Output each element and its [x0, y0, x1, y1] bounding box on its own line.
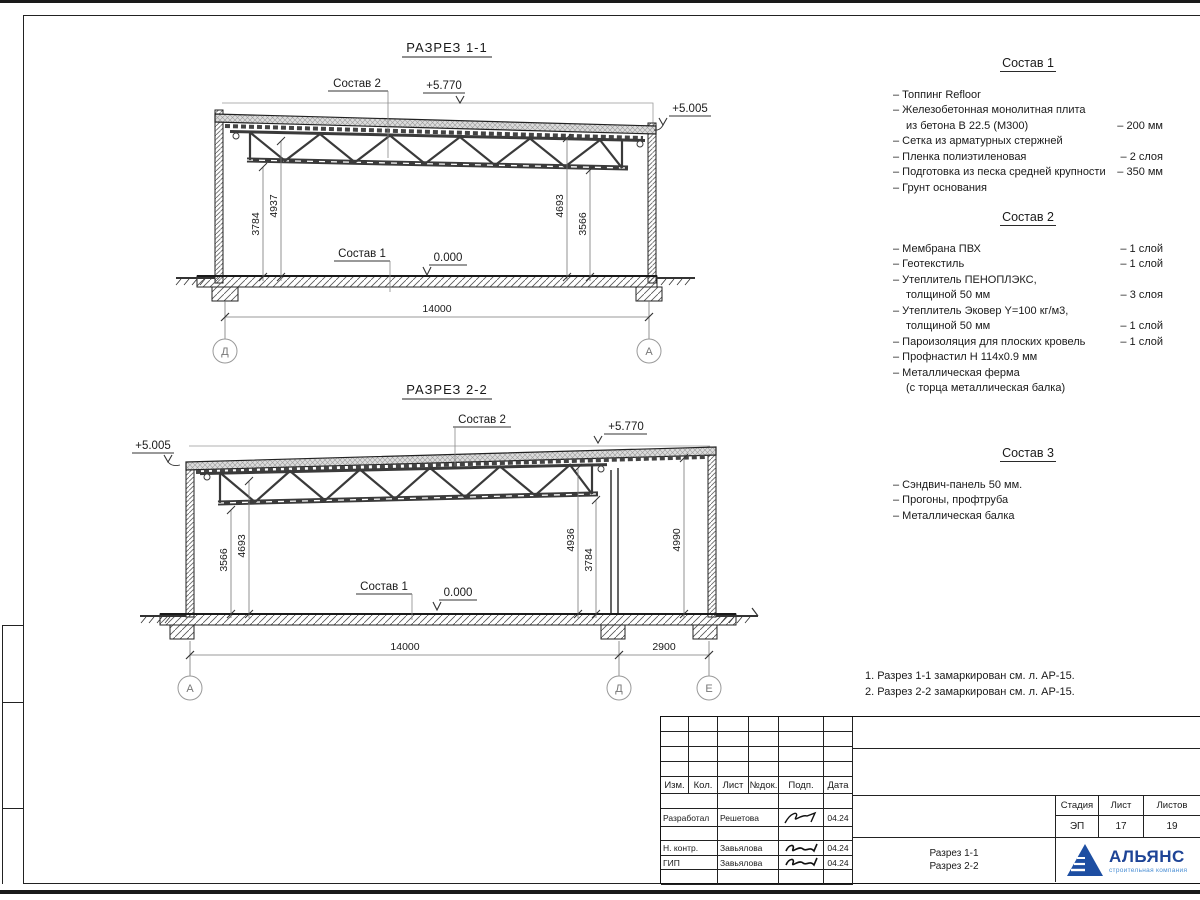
list-item: – Утеплитель ПЕНОПЛЭКС,толщиной 50 мм – … — [893, 273, 1163, 304]
col-header: Подп. — [779, 777, 824, 794]
svg-text:Состав 1: Состав 1 — [360, 581, 408, 593]
list-item: – Пленка полиэтиленовая – 2 слоя — [893, 150, 1163, 166]
dim-label: 4937 — [268, 194, 280, 218]
list-item: – Утеплитель Эковер Y=100 кг/м3,толщиной… — [893, 304, 1163, 335]
list-title: Состав 2 — [893, 210, 1163, 226]
role-cell: ГИП — [661, 856, 718, 870]
note-line: 2. Разрез 2-2 замаркирован см. л. АР-15. — [865, 684, 1075, 700]
item-text-line2: толщиной 50 мм — [893, 288, 1115, 304]
col-header: Кол. — [689, 777, 718, 794]
grid-axes: А Д Е — [178, 676, 721, 700]
item-value: – 1 слой — [1114, 257, 1163, 273]
col-header: №док. — [749, 777, 779, 794]
item-text: – Мембрана ПВХ — [893, 243, 981, 255]
wall-left — [215, 110, 223, 283]
note-line: 1. Разрез 1-1 замаркирован см. л. АР-15. — [865, 668, 1075, 684]
sheets-value: 19 — [1144, 816, 1200, 838]
stage-sheet-grid: Стадия Лист Листов ЭП 17 19 — [1056, 796, 1200, 838]
item-text: – Пленка полиэтиленовая — [893, 151, 1026, 163]
col-header: Дата — [824, 777, 853, 794]
svg-text:2900: 2900 — [652, 641, 676, 653]
list-item: – Сэндвич-панель 50 мм. — [893, 478, 1163, 494]
date-cell: 04.24 — [824, 809, 853, 827]
item-text-line2: (с торца металлическая балка) — [893, 381, 1163, 397]
section-2-2: РАЗРЕЗ 2-2 — [132, 382, 758, 700]
svg-text:+5.005: +5.005 — [135, 440, 171, 452]
span-dimension: 14000 2900 — [186, 641, 713, 676]
svg-text:+5.770: +5.770 — [426, 80, 462, 92]
item-text: – Грунт основания — [893, 182, 987, 194]
svg-text:14000: 14000 — [390, 641, 419, 653]
dim-label: 3566 — [218, 548, 230, 572]
elevation-mark-eave: +5.005 — [132, 440, 180, 466]
sheet-title: Разрез 1-1 Разрез 2-2 — [853, 838, 1056, 882]
composition-list-2: Состав 2 – Мембрана ПВХ – 1 слой – Геоте… — [893, 210, 1163, 397]
item-value: – 1 слой — [1114, 319, 1163, 335]
signature-cell — [779, 841, 824, 856]
dim-label: 4990 — [671, 528, 683, 552]
logo-name: АЛЬЯНС — [1109, 847, 1187, 867]
list-item: – Топпинг Refloor — [893, 88, 1163, 104]
sheets-label: Листов — [1144, 796, 1200, 816]
dim-label: 4693 — [554, 194, 566, 218]
empty-cell — [853, 796, 1056, 838]
item-value: – 1 слой — [1114, 242, 1163, 258]
svg-text:+5.770: +5.770 — [608, 421, 644, 433]
dim-label: 3784 — [583, 548, 595, 572]
list-items: – Мембрана ПВХ – 1 слой – Геотекстиль – … — [893, 242, 1163, 397]
signature-cell — [779, 856, 824, 870]
list-item: – Профнастил Н 114х0.9 мм — [893, 350, 1163, 366]
item-value: – 350 мм — [1111, 165, 1163, 181]
item-value: – 200 мм — [1111, 119, 1163, 135]
title-block-main: Разрез 1-1 Разрез 2-2 Стадия Лист Листов… — [853, 717, 1200, 882]
list-title: Состав 1 — [893, 56, 1163, 72]
dim-label: 4936 — [565, 528, 577, 552]
doc-code-cell — [853, 717, 1200, 749]
list-item: – Мембрана ПВХ – 1 слой — [893, 242, 1163, 258]
axis-label: Д — [221, 346, 229, 358]
item-text: – Утеплитель ПЕНОПЛЭКС, — [893, 274, 1037, 286]
list-item: – Железобетонная монолитная плитаиз бето… — [893, 103, 1163, 134]
composition-list-3: Состав 3 – Сэндвич-панель 50 мм. – Прого… — [893, 446, 1163, 524]
item-text: – Профнастил Н 114х0.9 мм — [893, 351, 1037, 363]
svg-text:Состав 2: Состав 2 — [458, 414, 506, 426]
wall-right — [708, 447, 716, 617]
signature-icon — [781, 856, 821, 869]
axis-label: Е — [705, 683, 712, 695]
list-title: Состав 3 — [893, 446, 1163, 462]
item-text: – Металлическая ферма — [893, 367, 1020, 379]
item-text: – Сетка из арматурных стержней — [893, 135, 1063, 147]
item-value: – 1 слой — [1114, 335, 1163, 351]
item-text: – Металлическая балка — [893, 510, 1015, 522]
steel-truss — [230, 132, 645, 169]
list-item: – Грунт основания — [893, 181, 1163, 197]
stage-value: ЭП — [1056, 816, 1099, 838]
signature-icon — [781, 810, 821, 826]
foundation-pad — [636, 287, 662, 301]
list-items: – Топпинг Refloor – Железобетонная монол… — [893, 88, 1163, 197]
elevation-mark-floor: 0.000 — [433, 587, 477, 610]
item-value: – 3 слоя — [1115, 288, 1163, 304]
foundation-pad — [693, 625, 717, 639]
vertical-dimensions — [259, 134, 594, 281]
elevation-mark-eave: +5.005 — [654, 103, 711, 130]
dim-label: 4693 — [236, 534, 248, 558]
sheet-value: 17 — [1099, 816, 1144, 838]
drawing-notes: 1. Разрез 1-1 замаркирован см. л. АР-15.… — [865, 668, 1075, 700]
list-items: – Сэндвич-панель 50 мм. – Прогоны, профт… — [893, 478, 1163, 525]
section-title: РАЗРЕЗ 2-2 — [406, 382, 488, 397]
col-header: Лист — [718, 777, 749, 794]
floor-slab — [197, 276, 657, 287]
signature-icon — [781, 842, 821, 855]
doc-code-cell2 — [853, 749, 1200, 796]
title-block: Изм. Кол. Лист №док. Подп. Дата Разработ… — [660, 716, 1200, 884]
elevation-mark-top: +5.770 — [594, 421, 647, 443]
svg-text:Состав 2: Состав 2 — [333, 78, 381, 90]
column-axis-d — [611, 468, 618, 614]
pyramid-logo-icon — [1062, 842, 1104, 878]
stage-label: Стадия — [1056, 796, 1099, 816]
item-text: – Сэндвич-панель 50 мм. — [893, 479, 1022, 491]
list-item: – Сетка из арматурных стержней — [893, 134, 1163, 150]
foundation-pad — [170, 625, 194, 639]
foundation-pad — [601, 625, 625, 639]
role-cell: Н. контр. — [661, 841, 718, 856]
composition-list-1: Состав 1 – Топпинг Refloor – Железобетон… — [893, 56, 1163, 196]
foundation-pad — [212, 287, 238, 301]
item-text: – Геотекстиль — [893, 258, 964, 270]
span-dimension: 14000 — [221, 301, 653, 339]
title-block-signatures: Изм. Кол. Лист №док. Подп. Дата Разработ… — [661, 717, 853, 882]
col-header: Изм. — [661, 777, 689, 794]
item-text: – Подготовка из песка средней крупности — [893, 166, 1106, 178]
list-item: – Металлическая балка — [893, 509, 1163, 525]
elevation-mark-floor: 0.000 — [423, 252, 467, 275]
logo-subtitle: строительная компания — [1109, 867, 1187, 874]
sheet-title-line: Разрез 1-1 — [929, 847, 978, 860]
list-item: – Подготовка из песка средней крупности … — [893, 165, 1163, 181]
wall-right — [648, 123, 656, 283]
svg-text:0.000: 0.000 — [444, 587, 473, 599]
elevation-mark-top: +5.770 — [423, 80, 465, 103]
date-cell: 04.24 — [824, 841, 853, 856]
name-cell: Завьялова — [718, 841, 779, 856]
item-text: – Прогоны, профтруба — [893, 494, 1008, 506]
item-text: – Пароизоляция для плоских кровель — [893, 336, 1085, 348]
svg-text:Состав 1: Состав 1 — [338, 248, 386, 260]
name-cell: Завьялова — [718, 856, 779, 870]
axis-label: Д — [615, 683, 623, 695]
svg-text:+5.005: +5.005 — [672, 103, 708, 115]
dim-label: 3784 — [250, 212, 262, 236]
axis-label: А — [186, 683, 194, 695]
list-item: – Геотекстиль – 1 слой — [893, 257, 1163, 273]
company-logo: АЛЬЯНС строительная компания — [1056, 838, 1200, 882]
item-text-line2: из бетона В 22.5 (М300) — [893, 119, 1111, 135]
list-item: – Металлическая ферма(с торца металличес… — [893, 366, 1163, 397]
item-text: – Утеплитель Эковер Y=100 кг/м3, — [893, 305, 1068, 317]
axis-label: А — [645, 346, 653, 358]
item-value: – 2 слоя — [1115, 150, 1163, 166]
item-text-line2: толщиной 50 мм — [893, 319, 1114, 335]
dim-label: 3566 — [577, 212, 589, 236]
section-title: РАЗРЕЗ 1-1 — [406, 40, 488, 55]
date-cell: 04.24 — [824, 856, 853, 870]
sheet-label: Лист — [1099, 796, 1144, 816]
signature-cell — [779, 809, 824, 827]
name-cell: Решетова — [718, 809, 779, 827]
item-text: – Топпинг Refloor — [893, 89, 981, 101]
grid-axes: Д А — [213, 339, 661, 363]
list-item: – Пароизоляция для плоских кровель – 1 с… — [893, 335, 1163, 351]
item-text: – Железобетонная монолитная плита — [893, 104, 1086, 116]
role-cell: Разработал — [661, 809, 718, 827]
sheet-title-line: Разрез 2-2 — [929, 860, 978, 873]
floor-slab — [160, 614, 736, 625]
svg-text:0.000: 0.000 — [434, 252, 463, 264]
section-1-1: РАЗРЕЗ 1-1 — [176, 40, 711, 363]
svg-text:14000: 14000 — [422, 303, 451, 315]
list-item: – Прогоны, профтруба — [893, 493, 1163, 509]
wall-left — [186, 462, 194, 617]
